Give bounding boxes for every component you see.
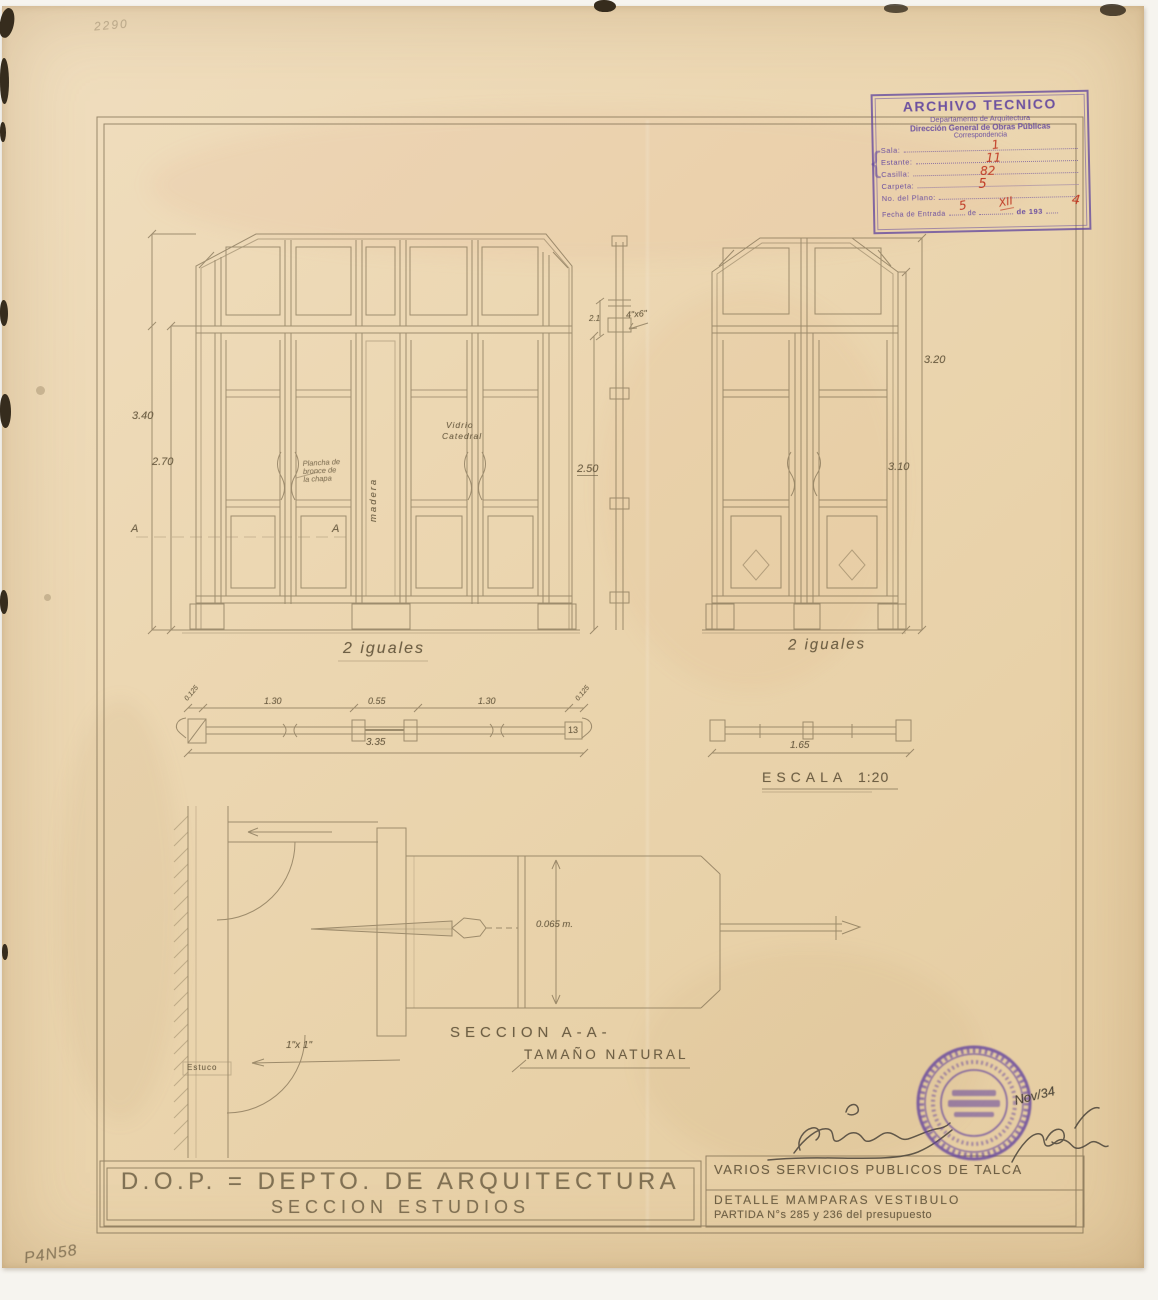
plan-box-number: 13: [568, 725, 578, 735]
scanned-drawing-sheet: 2290 3.40 2.70 A A Plancha de bronce de …: [0, 0, 1158, 1300]
field-label-casilla: Casilla:: [881, 169, 910, 179]
bronze-plate-note: Plancha de bronce de la chapa: [302, 458, 341, 484]
dim-section-depth: 0.065 m.: [536, 919, 573, 930]
dim-right-elevation-inner: 3.10: [888, 461, 909, 473]
field-label-carpeta: Carpeta:: [881, 181, 914, 191]
section-subtitle: TAMAÑO NATURAL: [524, 1047, 689, 1062]
date-row-de: de: [968, 210, 977, 217]
titleblock-project-line2: DETALLE MAMPARAS VESTIBULO: [714, 1193, 1078, 1207]
archive-date-row: Fecha de Entrada de de 193: [882, 204, 1082, 219]
left-elevation: [136, 230, 580, 634]
dim-left-elevation-door: 2.70: [152, 456, 173, 468]
paper-hole: [36, 386, 45, 395]
paper-tear: [0, 590, 8, 614]
dim-left-elevation-total: 3.40: [132, 410, 153, 422]
titleblock-dept-line1: D.O.P. = DEPTO. DE ARQUITECTURA: [100, 1168, 701, 1196]
dim-plan-leaf-right: 1.30: [478, 696, 496, 706]
paper-tear: [0, 58, 9, 104]
dim-plan-narrow-total: 1.65: [790, 740, 809, 751]
scale-value: 1:20: [858, 769, 889, 785]
field-label-estante: Estante:: [881, 157, 913, 167]
dim-plan-total: 3.35: [366, 737, 385, 748]
signature-right: [1012, 1134, 1108, 1162]
paper-hole: [44, 594, 51, 601]
scale-label: ESCALA: [762, 769, 847, 785]
caption-left-elevation: 2 iguales: [343, 640, 425, 658]
section-size-note: 1"x 1": [286, 1040, 312, 1051]
titleblock-project-line3: PARTIDA N°s 285 y 236 del presupuesto: [714, 1209, 1078, 1221]
wood-label: madera: [368, 478, 379, 522]
dim-mullion-small: 2.1: [589, 314, 600, 323]
paper-tear: [884, 4, 908, 13]
mullion-size-note: 4"x6": [626, 308, 648, 320]
date-row-year-prefix: de 193: [1016, 207, 1043, 217]
field-label-sala: Sala:: [881, 146, 901, 155]
paper-tear: [1100, 4, 1126, 16]
glass-label-line2: Catedral: [442, 431, 482, 441]
archive-stamp: ARCHIVO TECNICO Departamento de Arquitec…: [871, 90, 1092, 235]
paper-tear: [594, 0, 616, 12]
field-label-plano: No. del Plano:: [882, 193, 936, 203]
date-value-month: XII: [998, 194, 1014, 210]
titleblock-project-line1: VARIOS SERVICIOS PUBLICOS DE TALCA: [714, 1162, 1078, 1177]
round-stamp: [918, 1047, 1030, 1159]
paper-tear: [2, 944, 8, 960]
section-title: SECCION A-A-: [450, 1024, 612, 1041]
dim-plan-leaf-left: 1.30: [264, 696, 282, 706]
field-value-carpeta: 5: [978, 177, 987, 192]
section-detail: [174, 661, 860, 1158]
section-marker-a-left: A: [131, 523, 138, 535]
dim-plan-center: 0.55: [368, 696, 386, 706]
dim-mullion-height: 2.50: [577, 463, 598, 476]
wall-finish-label: Estuco: [187, 1063, 217, 1072]
dim-right-elevation-total: 3.20: [924, 354, 945, 366]
titleblock-dept-line2: SECCION ESTUDIOS: [100, 1197, 701, 1218]
glass-label-line1: Vidrio: [446, 420, 474, 430]
right-elevation: [702, 234, 926, 634]
section-marker-a-right: A: [332, 523, 339, 535]
field-value-casilla: 82: [980, 164, 996, 178]
paper-tear: [0, 122, 6, 142]
mullion-section: [590, 236, 648, 634]
date-value-mark: 4: [1071, 193, 1081, 209]
signatures: [768, 1105, 1108, 1162]
paper-tear: [0, 394, 11, 428]
date-row-label: Fecha de Entrada: [882, 211, 946, 219]
paper-tear: [0, 300, 8, 326]
caption-right-elevation: 2 iguales: [788, 635, 866, 653]
plan-wide: [176, 704, 591, 757]
